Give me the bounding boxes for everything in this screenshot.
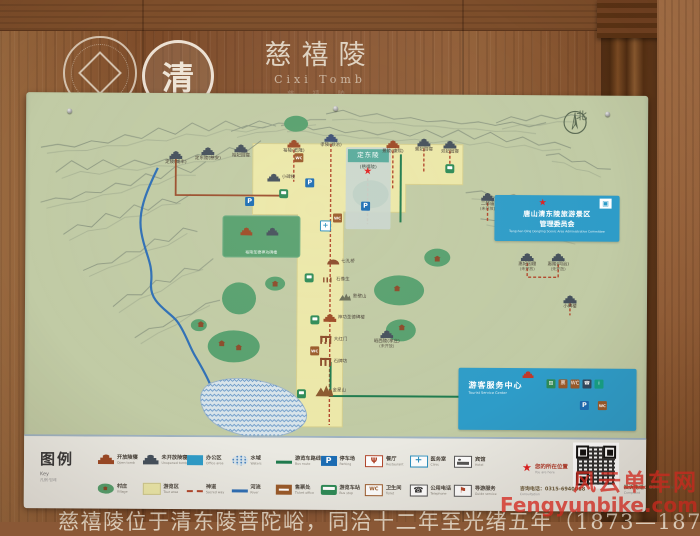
legend-item: 游览区Tour area <box>142 475 187 501</box>
legend-item-en: River <box>250 490 260 494</box>
watermark-en: Fengyunbike.com <box>500 495 698 516</box>
legend-item-en: Office area <box>206 461 223 465</box>
legend-title-other: 凡例·범례 <box>40 477 74 483</box>
legend-item: 游览车路线Bus route <box>276 447 321 473</box>
legend-item-en: Telephone <box>430 492 451 496</box>
map-area: 定东陵 (慈禧陵) 裕陵圣德神功碑楼 ★ ▣ 唐山清东陵旅游景区 管理委员会 T… <box>24 92 648 438</box>
tomb-dark-icon <box>481 193 494 201</box>
map-label: 大红门 <box>334 337 348 342</box>
legend-item: Ψ餐厅Restaurant <box>365 448 410 474</box>
wc-icon: WC <box>365 484 383 496</box>
map-label: 神功圣德碑楼 <box>338 315 365 321</box>
star-icon: ★ <box>363 167 373 177</box>
qr-finder-icon <box>576 445 589 458</box>
tomb-dark-icon <box>234 144 247 152</box>
legend-item-en: Guide service <box>475 492 497 496</box>
village-icon <box>98 483 114 493</box>
tomb-red-icon <box>323 314 336 322</box>
legend-item-en: Waters <box>250 461 261 465</box>
tomb-dark-icon <box>201 147 214 155</box>
legend-item-en: Bus stop <box>339 491 360 495</box>
house-icon <box>197 321 204 327</box>
screw <box>605 112 610 117</box>
legend-item-en: Sacred way <box>206 490 224 494</box>
ticket-icon <box>276 484 292 494</box>
legend-title-block: 图例 Key 凡例·범례 <box>40 448 74 483</box>
map-sign: 定东陵 (慈禧陵) 裕陵圣德神功碑楼 ★ ▣ 唐山清东陵旅游景区 管理委员会 T… <box>24 92 649 510</box>
tomb-dark-icon <box>443 141 456 149</box>
map-label: 石像生 <box>336 277 350 282</box>
tomb-dark-icon <box>169 151 182 159</box>
legend-item: 未开放陵寝Unopened tomb <box>142 446 187 472</box>
legend-item-en: Restaurant <box>386 462 403 466</box>
tomb-dark-icon <box>417 138 430 146</box>
legend-item-en: Parking <box>339 462 355 466</box>
legend-item-en: Ticket office <box>295 491 314 495</box>
clinic-icon: + <box>409 455 427 467</box>
legend-item: 河流River <box>231 476 276 502</box>
map-label: 二郎庙(未开放) <box>480 202 495 213</box>
wc-icon: WC <box>310 346 319 355</box>
legend-item-label: 水域 <box>251 454 262 461</box>
wc-icon: WC <box>333 213 342 222</box>
lake-icon <box>231 455 247 465</box>
house-icon <box>235 344 242 350</box>
map-label: 双妃园寝 <box>441 150 459 156</box>
tomb-red-icon <box>98 454 114 464</box>
bus-icon <box>310 315 319 324</box>
legend-grid: 开放陵寝Open tomb村庄Village未开放陵寝Unopened tomb… <box>98 445 500 505</box>
legend-item: 宾馆Hotel <box>454 448 499 474</box>
legend-item-en: Toilet <box>386 491 402 495</box>
tomb-dark-icon <box>142 454 158 464</box>
house-icon <box>434 256 441 262</box>
bus-icon <box>320 484 336 494</box>
page-title-en: Cixi Tomb <box>190 73 450 86</box>
house-icon <box>398 324 405 330</box>
p-icon: P <box>361 202 370 211</box>
legend-item: 村庄Village <box>98 475 143 501</box>
map-label: 裕妃园寝 <box>232 153 250 159</box>
bus-icon <box>305 273 314 282</box>
qr-finder-icon <box>603 446 616 459</box>
red-dash-icon <box>187 490 203 492</box>
tomb-dark-icon <box>267 174 280 182</box>
house-icon <box>218 340 225 346</box>
map-label: 小碑楼 <box>563 304 577 309</box>
legend-item-label: 宾馆 <box>475 456 485 463</box>
restaurant-icon: Ψ <box>365 455 383 467</box>
map-label: 景妃园寝 <box>415 147 433 153</box>
tomb-dark-icon <box>521 253 534 261</box>
tomb-blue-icon <box>324 134 337 142</box>
screw <box>67 108 72 113</box>
tomb-dark-icon <box>552 253 565 261</box>
tomb-dark-icon <box>380 330 393 338</box>
house-icon <box>394 285 401 291</box>
legend-item: +医务室Clinic <box>409 448 454 474</box>
legend-item: 神道Sacred way <box>187 476 232 502</box>
sign-title-block: 慈禧陵 Cixi Tomb 慈 禧 陵 <box>190 42 450 99</box>
map-label: 景陵(康熙) <box>382 149 404 155</box>
legend-item: ⚑导游服务Guide service <box>454 477 499 503</box>
mountain-lg-icon <box>315 385 333 396</box>
wood-top-rail <box>0 0 700 31</box>
clinic-icon: + <box>320 220 331 231</box>
blue-icon <box>187 455 203 465</box>
statues-icon <box>323 277 333 282</box>
yellow-icon <box>142 482 160 494</box>
legend-item: 开放陵寝Open tomb <box>98 446 143 472</box>
legend-item-en: Bus route <box>295 462 321 466</box>
p-icon: P <box>580 401 589 410</box>
legend-item-label: 村庄 <box>117 483 128 490</box>
phone-icon: ☎ <box>409 484 427 496</box>
screw <box>333 106 338 111</box>
map-label: 孝陵(顺治) <box>320 143 342 149</box>
map-markers-layer: 定陵(咸丰)定东陵(慈安)裕妃园寝裕陵(乾隆)孝陵(顺治)景陵(康熙)景妃园寝双… <box>24 92 648 438</box>
photo-of-map-sign: { "photo": { "watermark_line1": "风云单车网",… <box>0 0 700 522</box>
legend-item-en: Village <box>117 490 128 494</box>
page-title: 慈禧陵 <box>190 42 450 69</box>
legend-item-label: 河流 <box>250 483 260 490</box>
map-label: 惠陵(同治)(未开放) <box>547 262 569 273</box>
gate-icon <box>320 358 331 366</box>
map-label: 定陵(咸丰) <box>165 160 187 166</box>
legend-item-en: Tour area <box>163 490 179 494</box>
map-label: 影壁山 <box>353 294 367 299</box>
tomb-red-icon <box>386 140 399 148</box>
tomb-dark-icon <box>563 295 576 303</box>
legend-item-en: Hotel <box>475 463 485 467</box>
p-icon: P <box>245 197 254 206</box>
map-label: 金星山 <box>332 388 346 393</box>
map-label: 石牌坊 <box>334 359 348 364</box>
wc-icon: WC <box>294 153 303 162</box>
legend-item: 水域Waters <box>231 447 276 473</box>
bus-icon <box>445 164 454 173</box>
house-icon <box>272 281 279 287</box>
map-label: 昭西陵(孝庄)(未开放) <box>374 339 400 350</box>
green-line-icon <box>276 461 292 464</box>
map-label: 定东陵(慈安) <box>195 156 221 162</box>
blue-line-icon <box>231 490 247 493</box>
watermark: 风云单车网 Fengyunbike.com <box>500 471 698 516</box>
door-frame-corner <box>597 0 661 38</box>
legend-item-en: Unopened tomb <box>161 461 187 465</box>
guide-icon: ⚑ <box>454 484 472 496</box>
tomb-red-icon <box>287 140 300 148</box>
legend-item-en: Open tomb <box>117 461 138 465</box>
legend-item: P停车场Parking <box>320 447 365 473</box>
legend-item: 游览车站Bus stop <box>320 476 365 502</box>
wood-plank-right <box>657 0 700 522</box>
map-label: 惠妃园寝(未开放) <box>518 262 536 273</box>
bridge-icon <box>327 259 339 264</box>
bus-icon <box>297 389 306 398</box>
watermark-cn: 风云单车网 <box>500 471 698 495</box>
legend-item-en: Clinic <box>430 463 446 467</box>
you-are-here-label: 您的所在位置 <box>535 462 568 470</box>
legend-item: 售票处Ticket office <box>276 476 321 502</box>
legend-item: WC卫生间Toilet <box>365 477 410 503</box>
p-icon: P <box>305 178 314 187</box>
legend-item: 办公区Office area <box>187 447 232 473</box>
map-label: 七孔桥 <box>341 259 355 264</box>
legend-title: 图例 <box>40 448 74 469</box>
map-label: 小碑楼 <box>282 175 296 180</box>
gate-icon <box>320 336 331 344</box>
mountain-icon <box>339 294 351 301</box>
legend-item: ☎公用电话Telephone <box>409 477 454 503</box>
parking-icon: P <box>320 455 336 465</box>
wc-icon: WC <box>598 401 607 410</box>
bus-icon <box>279 189 288 198</box>
hotel-icon <box>454 455 472 467</box>
